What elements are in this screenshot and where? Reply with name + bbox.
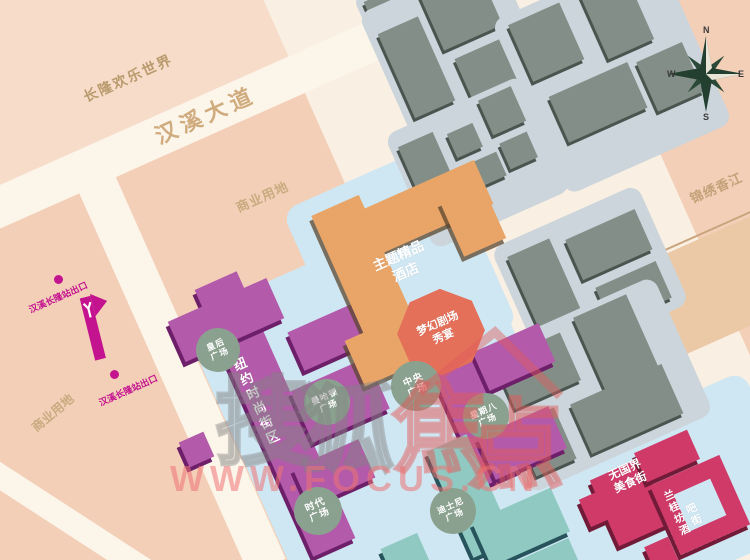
metro-station-icon	[63, 286, 126, 376]
compass-rose: N E S W	[666, 24, 746, 120]
commercial-land-top-label: 商业用地	[233, 176, 292, 216]
building-footprint	[576, 0, 654, 59]
building-footprint	[508, 2, 584, 81]
metro-exit-label-2: 汉溪长隆站出口	[97, 371, 160, 409]
watermark-url: WWW.FOCUS.CN	[170, 458, 540, 500]
site-plan-map: 长隆欢乐世界 汉溪大道 商业用地 商业用地 锦绣香江 汉溪长隆站出口 汉溪长隆站…	[0, 0, 750, 560]
jinxiu-xiangjiang-label: 锦绣香江	[687, 167, 746, 207]
building-footprint	[447, 123, 483, 158]
compass-west: W	[667, 69, 676, 79]
compass-east: E	[738, 69, 744, 79]
side-road-southwest	[0, 442, 163, 560]
compass-north: N	[703, 25, 710, 35]
metro-exit-dot	[54, 275, 63, 284]
building-footprint	[478, 86, 526, 135]
commercial-land-left-label: 商业用地	[27, 389, 78, 436]
compass-south: S	[703, 112, 709, 120]
building-footprint	[499, 132, 538, 170]
metro-exit-dot	[110, 370, 119, 379]
watermark-house-icon	[415, 322, 565, 402]
building-footprint	[549, 62, 648, 143]
